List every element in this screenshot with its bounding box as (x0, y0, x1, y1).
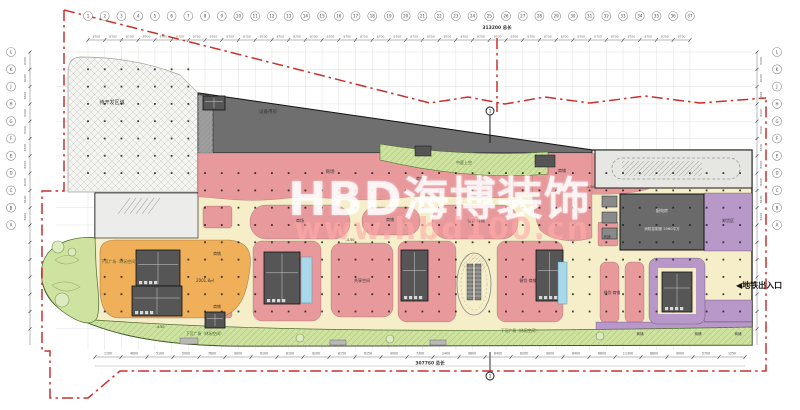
svg-text:26: 26 (503, 14, 509, 19)
svg-text:8400: 8400 (23, 74, 27, 82)
escalator (467, 264, 473, 300)
svg-text:313200 总长: 313200 总长 (482, 24, 512, 31)
plan-label: 餐饮·商铺 (519, 277, 536, 283)
plan-label: 商铺 (604, 234, 612, 239)
svg-text:8700: 8700 (126, 35, 134, 39)
svg-text:D: D (775, 171, 778, 176)
svg-text:9: 9 (220, 14, 223, 19)
svg-text:4: 4 (137, 14, 140, 19)
svg-text:8400: 8400 (759, 126, 763, 134)
svg-text:8150: 8150 (338, 352, 346, 356)
svg-text:32: 32 (604, 14, 610, 19)
svg-text:9200: 9200 (312, 352, 320, 356)
svg-text:8400: 8400 (494, 352, 502, 356)
svg-text:8700: 8700 (226, 35, 234, 39)
svg-text:D: D (9, 171, 12, 176)
svg-text:8200: 8200 (520, 352, 528, 356)
svg-text:22: 22 (437, 14, 443, 19)
subway-exit-label: ◀地铁出入口 (736, 280, 782, 290)
svg-text:9000: 9000 (234, 352, 242, 356)
svg-text:8600: 8600 (650, 352, 658, 356)
plan-label: 配电房 (656, 207, 668, 213)
svg-text:8400: 8400 (759, 109, 763, 117)
svg-text:36: 36 (671, 14, 677, 19)
plan-label: 餐饮·商铺 (467, 217, 484, 223)
svg-text:1100: 1100 (104, 352, 112, 356)
plan-label: 共享空间 (354, 277, 370, 283)
svg-text:23: 23 (453, 14, 459, 19)
plan-label: 商场 (326, 168, 335, 175)
svg-text:19: 19 (386, 14, 392, 19)
svg-text:8700: 8700 (210, 35, 218, 39)
svg-text:8700: 8700 (243, 35, 251, 39)
svg-text:8700: 8700 (176, 35, 184, 39)
svg-text:8400: 8400 (759, 144, 763, 152)
svg-text:5700: 5700 (702, 352, 710, 356)
svg-text:8100: 8100 (286, 352, 294, 356)
plan-label: 商铺 (213, 251, 221, 256)
svg-text:8400: 8400 (23, 178, 27, 186)
svg-text:A: A (10, 223, 13, 228)
plan-label: -4.50 (585, 185, 594, 189)
svg-text:8700: 8700 (444, 35, 452, 39)
svg-text:8700: 8700 (410, 35, 418, 39)
svg-text:37: 37 (687, 14, 693, 19)
equipment-zone (198, 93, 592, 153)
svg-text:14: 14 (303, 14, 309, 19)
svg-text:8100: 8100 (260, 352, 268, 356)
svg-text:K: K (776, 67, 779, 72)
plan-label: 商铺 (735, 331, 743, 336)
svg-text:8700: 8700 (343, 35, 351, 39)
svg-text:8700: 8700 (310, 35, 318, 39)
svg-text:35: 35 (654, 14, 660, 19)
svg-text:8700: 8700 (511, 35, 519, 39)
svg-text:25: 25 (487, 14, 493, 19)
svg-text:8700: 8700 (293, 35, 301, 39)
svg-text:1250: 1250 (728, 352, 736, 356)
svg-text:8700: 8700 (327, 35, 335, 39)
svg-text:10: 10 (236, 14, 242, 19)
svg-text:B: B (776, 205, 779, 210)
svg-text:8700: 8700 (527, 35, 535, 39)
svg-text:8400: 8400 (759, 92, 763, 100)
svg-text:9000: 9000 (676, 352, 684, 356)
svg-text:C: C (776, 188, 779, 193)
svg-text:1: 1 (489, 374, 492, 380)
svg-text:8700: 8700 (143, 35, 151, 39)
svg-text:8700: 8700 (93, 35, 101, 39)
svg-text:33: 33 (620, 14, 626, 19)
svg-text:28: 28 (537, 14, 543, 19)
svg-text:8700: 8700 (611, 35, 619, 39)
svg-text:B: B (10, 205, 13, 210)
svg-text:8400: 8400 (23, 195, 27, 203)
svg-text:C: C (10, 188, 13, 193)
svg-text:8700: 8700 (109, 35, 117, 39)
plan-label: 商铺 (416, 175, 424, 181)
svg-text:8700: 8700 (159, 35, 167, 39)
svg-text:12: 12 (269, 14, 275, 19)
svg-text:2400: 2400 (442, 352, 450, 356)
plan-label: 商场 (296, 217, 304, 223)
svg-text:8400: 8400 (759, 57, 763, 65)
plan-label: 中庭上空 (456, 159, 472, 165)
svg-text:8700: 8700 (678, 35, 686, 39)
svg-text:8400: 8400 (23, 92, 27, 100)
svg-text:20: 20 (403, 14, 409, 19)
plan-label: 商铺 (695, 331, 703, 336)
svg-text:8400: 8400 (759, 161, 763, 169)
plan-svg: 1 1 待开发区域设备用房商场商铺中庭上空商铺商场商铺餐饮·商铺商铺商铺2001… (0, 0, 800, 410)
svg-text:A: A (776, 223, 779, 228)
svg-text:8700: 8700 (460, 35, 468, 39)
plan-label: 设备用房 (259, 108, 277, 115)
svg-text:H: H (9, 102, 12, 107)
svg-text:8700: 8700 (561, 35, 569, 39)
svg-text:11300: 11300 (623, 352, 633, 356)
plan-label: 下沉广场（休闲空间） (101, 259, 139, 264)
svg-text:31: 31 (587, 14, 593, 19)
svg-text:8700: 8700 (628, 35, 636, 39)
plan-label: 卸货区 (722, 217, 734, 223)
svg-text:8400: 8400 (759, 195, 763, 203)
svg-text:8400: 8400 (759, 74, 763, 82)
svg-text:8400: 8400 (759, 213, 763, 221)
plan-label: 下沉广场（休闲空间） (186, 331, 224, 336)
svg-text:8700: 8700 (477, 35, 485, 39)
svg-text:6600: 6600 (598, 352, 606, 356)
svg-text:8400: 8400 (23, 109, 27, 117)
undeveloped-parcel (68, 57, 198, 192)
plan-label: 待开发区域 (99, 99, 124, 106)
floor-plan-drawing: 1 1 待开发区域设备用房商场商铺中庭上空商铺商场商铺餐饮·商铺商铺商铺2001… (0, 0, 800, 410)
svg-text:7300: 7300 (416, 352, 424, 356)
svg-text:H: H (775, 102, 778, 107)
svg-text:K: K (10, 67, 13, 72)
plan-label: 2001.8㎡ (196, 277, 214, 283)
plan-label: -4.50 (155, 325, 164, 329)
svg-text:8700: 8700 (661, 35, 669, 39)
svg-text:8: 8 (204, 14, 207, 19)
svg-text:15: 15 (320, 14, 326, 19)
svg-text:8400: 8400 (23, 57, 27, 65)
plan-label: 商铺 (213, 304, 221, 309)
svg-text:8700: 8700 (276, 35, 284, 39)
svg-text:8700: 8700 (594, 35, 602, 39)
svg-text:8700: 8700 (427, 35, 435, 39)
svg-text:8400: 8400 (759, 178, 763, 186)
svg-text:8700: 8700 (360, 35, 368, 39)
svg-text:8400: 8400 (23, 161, 27, 169)
svg-text:27: 27 (520, 14, 526, 19)
svg-text:8700: 8700 (260, 35, 268, 39)
svg-text:16: 16 (336, 14, 342, 19)
svg-text:9000: 9000 (390, 352, 398, 356)
svg-text:5100: 5100 (156, 352, 164, 356)
svg-text:3: 3 (120, 14, 123, 19)
svg-text:307760 总长: 307760 总长 (415, 360, 445, 367)
svg-text:9000: 9000 (546, 352, 554, 356)
atrium-oval (457, 253, 491, 315)
plan-label: 餐饮·商铺 (604, 290, 621, 295)
svg-text:1: 1 (87, 14, 90, 19)
svg-text:7800: 7800 (208, 352, 216, 356)
svg-text:J: J (775, 84, 777, 89)
svg-text:8700: 8700 (644, 35, 652, 39)
svg-text:1: 1 (489, 109, 492, 115)
plan-label: 商铺 (558, 167, 566, 173)
svg-text:2: 2 (103, 14, 106, 19)
parking-ramp-block (595, 150, 752, 188)
svg-text:30: 30 (570, 14, 576, 19)
plan-label: 消防控制室 2560平方 (644, 226, 680, 231)
svg-text:18: 18 (370, 14, 376, 19)
svg-text:8400: 8400 (23, 144, 27, 152)
plan-label: -4.50 (345, 238, 354, 242)
plan-label: 下沉广场（休闲空间） (501, 328, 539, 333)
svg-text:17: 17 (353, 14, 359, 19)
svg-text:34: 34 (637, 14, 643, 19)
entry-plaza (95, 193, 198, 238)
svg-text:J: J (9, 84, 11, 89)
escalator (475, 264, 481, 300)
svg-text:8400: 8400 (23, 126, 27, 134)
svg-text:8400: 8400 (572, 352, 580, 356)
svg-text:8700: 8700 (577, 35, 585, 39)
svg-text:8700: 8700 (544, 35, 552, 39)
svg-text:24: 24 (470, 14, 476, 19)
svg-text:8400: 8400 (23, 213, 27, 221)
svg-text:11: 11 (253, 14, 259, 19)
svg-text:21: 21 (420, 14, 426, 19)
svg-text:8700: 8700 (394, 35, 402, 39)
svg-text:29: 29 (554, 14, 560, 19)
svg-text:8700: 8700 (494, 35, 502, 39)
plan-label: 商铺 (637, 331, 645, 336)
svg-text:8150: 8150 (364, 352, 372, 356)
svg-text:5000: 5000 (182, 352, 190, 356)
svg-text:9800: 9800 (468, 352, 476, 356)
svg-text:G: G (775, 119, 778, 124)
svg-text:8700: 8700 (193, 35, 201, 39)
svg-text:4600: 4600 (130, 352, 138, 356)
svg-text:8700: 8700 (377, 35, 385, 39)
svg-text:13: 13 (286, 14, 292, 19)
plan-label: 商铺 (386, 216, 394, 222)
svg-text:G: G (9, 119, 12, 124)
